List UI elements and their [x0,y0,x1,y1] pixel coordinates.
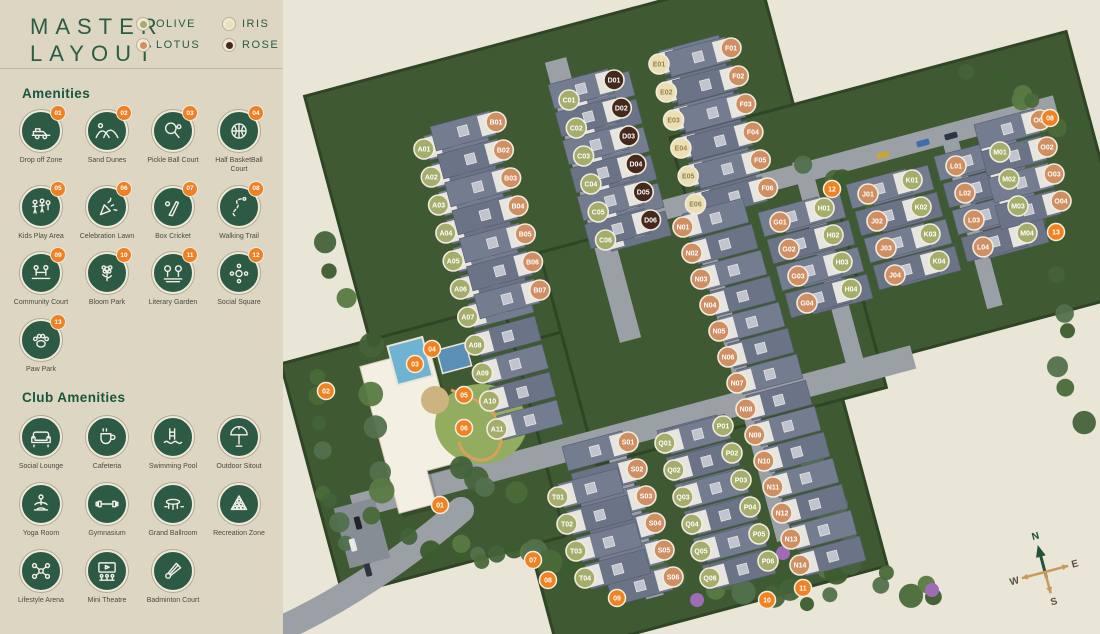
nodes-icon [20,550,62,592]
amenity-marker-number: 12 [828,186,836,193]
legend-label: OLIVE [156,18,196,30]
legend-label: IRIS [242,18,269,30]
amenity-label: Drop off Zone [20,157,63,166]
unit-label: N14 [794,563,807,570]
legend-item-olive: OLIVE [136,17,216,31]
unit-label: G01 [773,220,786,227]
unit-label: S06 [667,575,680,582]
unit-label: N11 [767,485,780,492]
cafe-icon [86,416,128,458]
legend-item-iris: IRIS [222,17,279,31]
unit-label: B05 [519,232,532,239]
unit-label: S05 [658,548,671,555]
unit-label: J01 [862,192,874,199]
unit-label: F03 [740,102,752,109]
unit-label: P05 [753,532,766,539]
lotus-dot-icon [136,38,150,52]
unit-label: N06 [722,355,735,362]
unit-label: M01 [993,150,1007,157]
unit-label: A10 [483,399,496,406]
unit-label: N04 [704,303,717,310]
amenity-number-badge: 06 [116,181,132,197]
unit-label: A06 [454,287,467,294]
unit-label: D06 [644,218,657,225]
unit-label: A08 [469,343,482,350]
amenity-label: Walking Trail [219,233,259,242]
amenity-label: Grand Ballroom [148,530,197,539]
sofa-icon [20,416,62,458]
unit-label: F06 [761,186,773,193]
unit-label: E02 [660,90,673,97]
amenity-label: Swimming Pool [149,463,197,472]
club-amenities-grid: Social LoungeCafeteriaSwimming PoolOutdo… [8,414,272,605]
amenity-item-paw-park: 13Paw Park [8,317,74,375]
unit-label: D05 [637,190,650,197]
amenity-item-cafeteria: Cafeteria [74,414,140,472]
amenity-label: Cafeteria [93,463,121,472]
unit-label: A09 [476,371,489,378]
unit-label: Q05 [694,549,707,556]
unit-label: S02 [631,467,644,474]
unit-label: S01 [622,440,635,447]
amenities-heading: Amenities [22,86,90,101]
unit-label: B06 [526,260,539,267]
amenity-number-badge: 09 [50,247,66,263]
unit-label: T03 [570,549,582,556]
amenity-item-kids-play-area: 05Kids Play Area [8,184,74,242]
unit-label: A04 [439,231,452,238]
amenity-label: Mini Theatre [88,597,127,606]
unit-label: O04 [1054,199,1067,206]
master-plan-svg: A01A02A03A04A05A06A07A08A09A10A11B01B02B… [283,0,1100,634]
amenity-item-gymnasium: Gymnasium [74,481,140,539]
unit-label: P04 [744,505,757,512]
unit-label: O02 [1040,145,1053,152]
amenity-item-social-square: 12Social Square [206,250,272,308]
unit-label: Q01 [658,441,671,448]
unit-label: P06 [762,559,775,566]
amenity-item-yoga-room: Yoga Room [8,481,74,539]
amenity-label: Paw Park [26,366,56,375]
unit-label: G04 [800,301,813,308]
unit-label: L02 [959,191,971,198]
unit-label: M02 [1002,177,1016,184]
unit-label: N02 [686,251,699,258]
unit-label: M03 [1011,204,1025,211]
amenity-marker-number: 03 [411,361,419,368]
amenity-marker-number: 01 [436,502,444,509]
unit-label: H03 [836,260,849,267]
rose-dot-icon [222,38,236,52]
unit-label: B03 [504,176,517,183]
amenity-item-half-basketball-court: 04Half BasketBall Court [206,108,272,175]
playground-area [421,386,449,414]
amenity-number-badge: 05 [50,181,66,197]
amenity-item-lifestyle-arena: Lifestyle Arena [8,548,74,606]
olive-dot-icon [136,17,150,31]
amenity-label: Bloom Park [89,299,125,308]
amenity-marker-number: 13 [1052,229,1060,236]
unit-label: A07 [461,315,474,322]
master-layout-page: MASTER LAYOUT OLIVEIRISLOTUSROSE Ameniti… [0,0,1100,634]
unit-label: Q04 [685,522,698,529]
unit-label: K02 [915,205,928,212]
club-amenities-heading: Club Amenities [22,390,125,405]
umbrella-icon [218,416,260,458]
unit-label: N03 [695,277,708,284]
amenity-item-pickle-ball-court: 03Pickle Ball Court [140,108,206,175]
amenity-item-community-court: 09Community Court [8,250,74,308]
amenity-label: Social Lounge [19,463,63,472]
unit-label: K01 [906,178,919,185]
amenity-item-social-lounge: Social Lounge [8,414,74,472]
unit-label: N09 [749,433,762,440]
amenity-item-drop-off-zone: 01Drop off Zone [8,108,74,175]
unit-label: S04 [649,521,662,528]
billiards-icon [218,483,260,525]
shuttle-icon [152,550,194,592]
unit-label: P02 [726,451,739,458]
amenity-number-badge: 04 [248,105,264,121]
amenity-label: Pickle Ball Court [147,157,198,166]
amenity-item-recreation-zone: Recreation Zone [206,481,272,539]
unit-label: F02 [732,74,744,81]
unit-label: K03 [924,232,937,239]
unit-label: N07 [731,381,744,388]
unit-label: O03 [1047,172,1060,179]
unit-label: P01 [717,424,730,431]
amenity-label: Recreation Zone [213,530,265,539]
amenity-label: Sand Dunes [88,157,127,166]
amenity-marker-number: 07 [529,557,537,564]
unit-label: N01 [677,225,690,232]
legend-item-lotus: LOTUS [136,38,216,52]
amenities-grid: 01Drop off Zone02Sand Dunes03Pickle Ball… [8,108,272,375]
unit-label: A01 [418,147,431,154]
unit-label: H01 [818,206,831,213]
amenity-label: Community Court [14,299,68,308]
unit-label: G02 [782,247,795,254]
amenity-item-badminton-court: Badminton Court [140,548,206,606]
unit-label: C04 [584,182,597,189]
sidebar: MASTER LAYOUT OLIVEIRISLOTUSROSE Ameniti… [0,0,283,634]
amenity-item-outdoor-sitout: Outdoor Sitout [206,414,272,472]
unit-label: E04 [675,146,688,153]
unit-label: C06 [599,238,612,245]
unit-label: E06 [689,202,702,209]
unit-label: F01 [725,46,737,53]
ballroom-icon [152,483,194,525]
unit-label: A05 [447,259,460,266]
amenity-item-sand-dunes: 02Sand Dunes [74,108,140,175]
amenity-item-box-cricket: 07Box Cricket [140,184,206,242]
unit-label: C05 [592,210,605,217]
unit-label: J02 [871,219,883,226]
unit-label: D01 [608,78,621,85]
unit-label: E05 [682,174,695,181]
amenity-number-badge: 08 [248,181,264,197]
amenity-marker-number: 09 [613,595,621,602]
unit-label: K04 [933,259,946,266]
unit-label: N05 [713,329,726,336]
unit-label: E03 [667,118,680,125]
amenity-label: Lifestyle Arena [18,597,64,606]
site-map: A01A02A03A04A05A06A07A08A09A10A11B01B02B… [283,0,1100,634]
unit-label: N13 [785,537,798,544]
amenity-number-badge: 10 [116,247,132,263]
unit-label: J04 [889,273,901,280]
amenity-number-badge: 12 [248,247,264,263]
unit-label: H04 [845,287,858,294]
amenity-number-badge: 01 [50,105,66,121]
theatre-icon [86,550,128,592]
unit-label: M04 [1020,231,1034,238]
amenity-label: Kids Play Area [18,233,64,242]
dumbbell-icon [86,483,128,525]
amenity-item-literary-garden: 11Literary Garden [140,250,206,308]
unit-type-legend: OLIVEIRISLOTUSROSE [136,17,279,52]
amenity-label: Celebration Lawn [80,233,134,242]
unit-label: L04 [977,245,989,252]
unit-label: G03 [791,274,804,281]
unit-label: A02 [425,175,438,182]
unit-label: F05 [754,158,766,165]
amenity-number-badge: 03 [182,105,198,121]
amenity-marker-number: 10 [763,597,771,604]
flowering-bush [690,593,704,607]
unit-label: H02 [827,233,840,240]
legend-label: ROSE [242,39,279,51]
amenity-item-walking-trail: 08Walking Trail [206,184,272,242]
flowering-bush [925,583,939,597]
unit-label: N08 [740,407,753,414]
amenity-item-swimming-pool: Swimming Pool [140,414,206,472]
amenity-label: Social Square [217,299,261,308]
unit-label: B02 [497,148,510,155]
amenity-item-mini-theatre: Mini Theatre [74,548,140,606]
legend-item-rose: ROSE [222,38,279,52]
amenity-item-bloom-park: 10Bloom Park [74,250,140,308]
unit-label: A11 [491,427,504,434]
unit-label: J03 [880,246,892,253]
unit-label: F04 [747,130,759,137]
unit-label: C01 [563,98,576,105]
unit-label: Q03 [676,495,689,502]
unit-label: P03 [735,478,748,485]
unit-label: N12 [776,511,789,518]
amenity-label: Outdoor Sitout [216,463,261,472]
amenity-number-badge: 02 [116,105,132,121]
amenity-marker-number: 11 [799,585,807,592]
unit-label: D04 [629,162,642,169]
unit-label: A03 [432,203,445,210]
unit-label: E01 [653,62,666,69]
unit-label: D02 [615,106,628,113]
amenity-label: Badminton Court [147,597,200,606]
unit-label: N10 [758,459,771,466]
amenity-label: Literary Garden [149,299,198,308]
amenity-number-badge: 13 [50,314,66,330]
unit-label: Q06 [703,576,716,583]
amenity-number-badge: 07 [182,181,198,197]
unit-label: L03 [968,218,980,225]
amenity-marker-number: 06 [460,425,468,432]
unit-label: B04 [511,204,524,211]
unit-label: B01 [490,120,503,127]
amenity-label: Gymnasium [88,530,125,539]
amenity-marker-number: 04 [428,346,436,353]
pool-icon [152,416,194,458]
unit-label: T04 [579,576,591,583]
unit-label: L01 [950,164,962,171]
legend-label: LOTUS [156,39,200,51]
amenity-marker-number: 02 [322,388,330,395]
amenity-label: Half BasketBall Court [207,157,271,175]
amenity-marker-number: 08 [1046,115,1054,122]
unit-label: S03 [640,494,653,501]
unit-label: C02 [570,126,583,133]
iris-dot-icon [222,17,236,31]
unit-label: C03 [577,154,590,161]
amenity-item-grand-ballroom: Grand Ballroom [140,481,206,539]
amenity-item-celebration-lawn: 06Celebration Lawn [74,184,140,242]
amenity-label: Box Cricket [155,233,191,242]
header-divider [0,68,283,69]
amenity-label: Yoga Room [23,530,59,539]
amenity-marker-number: 08 [544,577,552,584]
amenity-number-badge: 11 [182,247,198,263]
unit-label: T01 [552,495,564,502]
unit-label: Q02 [667,468,680,475]
yoga-icon [20,483,62,525]
unit-label: T02 [561,522,573,529]
unit-label: B07 [533,288,546,295]
amenity-marker-number: 05 [460,392,468,399]
unit-label: D03 [622,134,635,141]
